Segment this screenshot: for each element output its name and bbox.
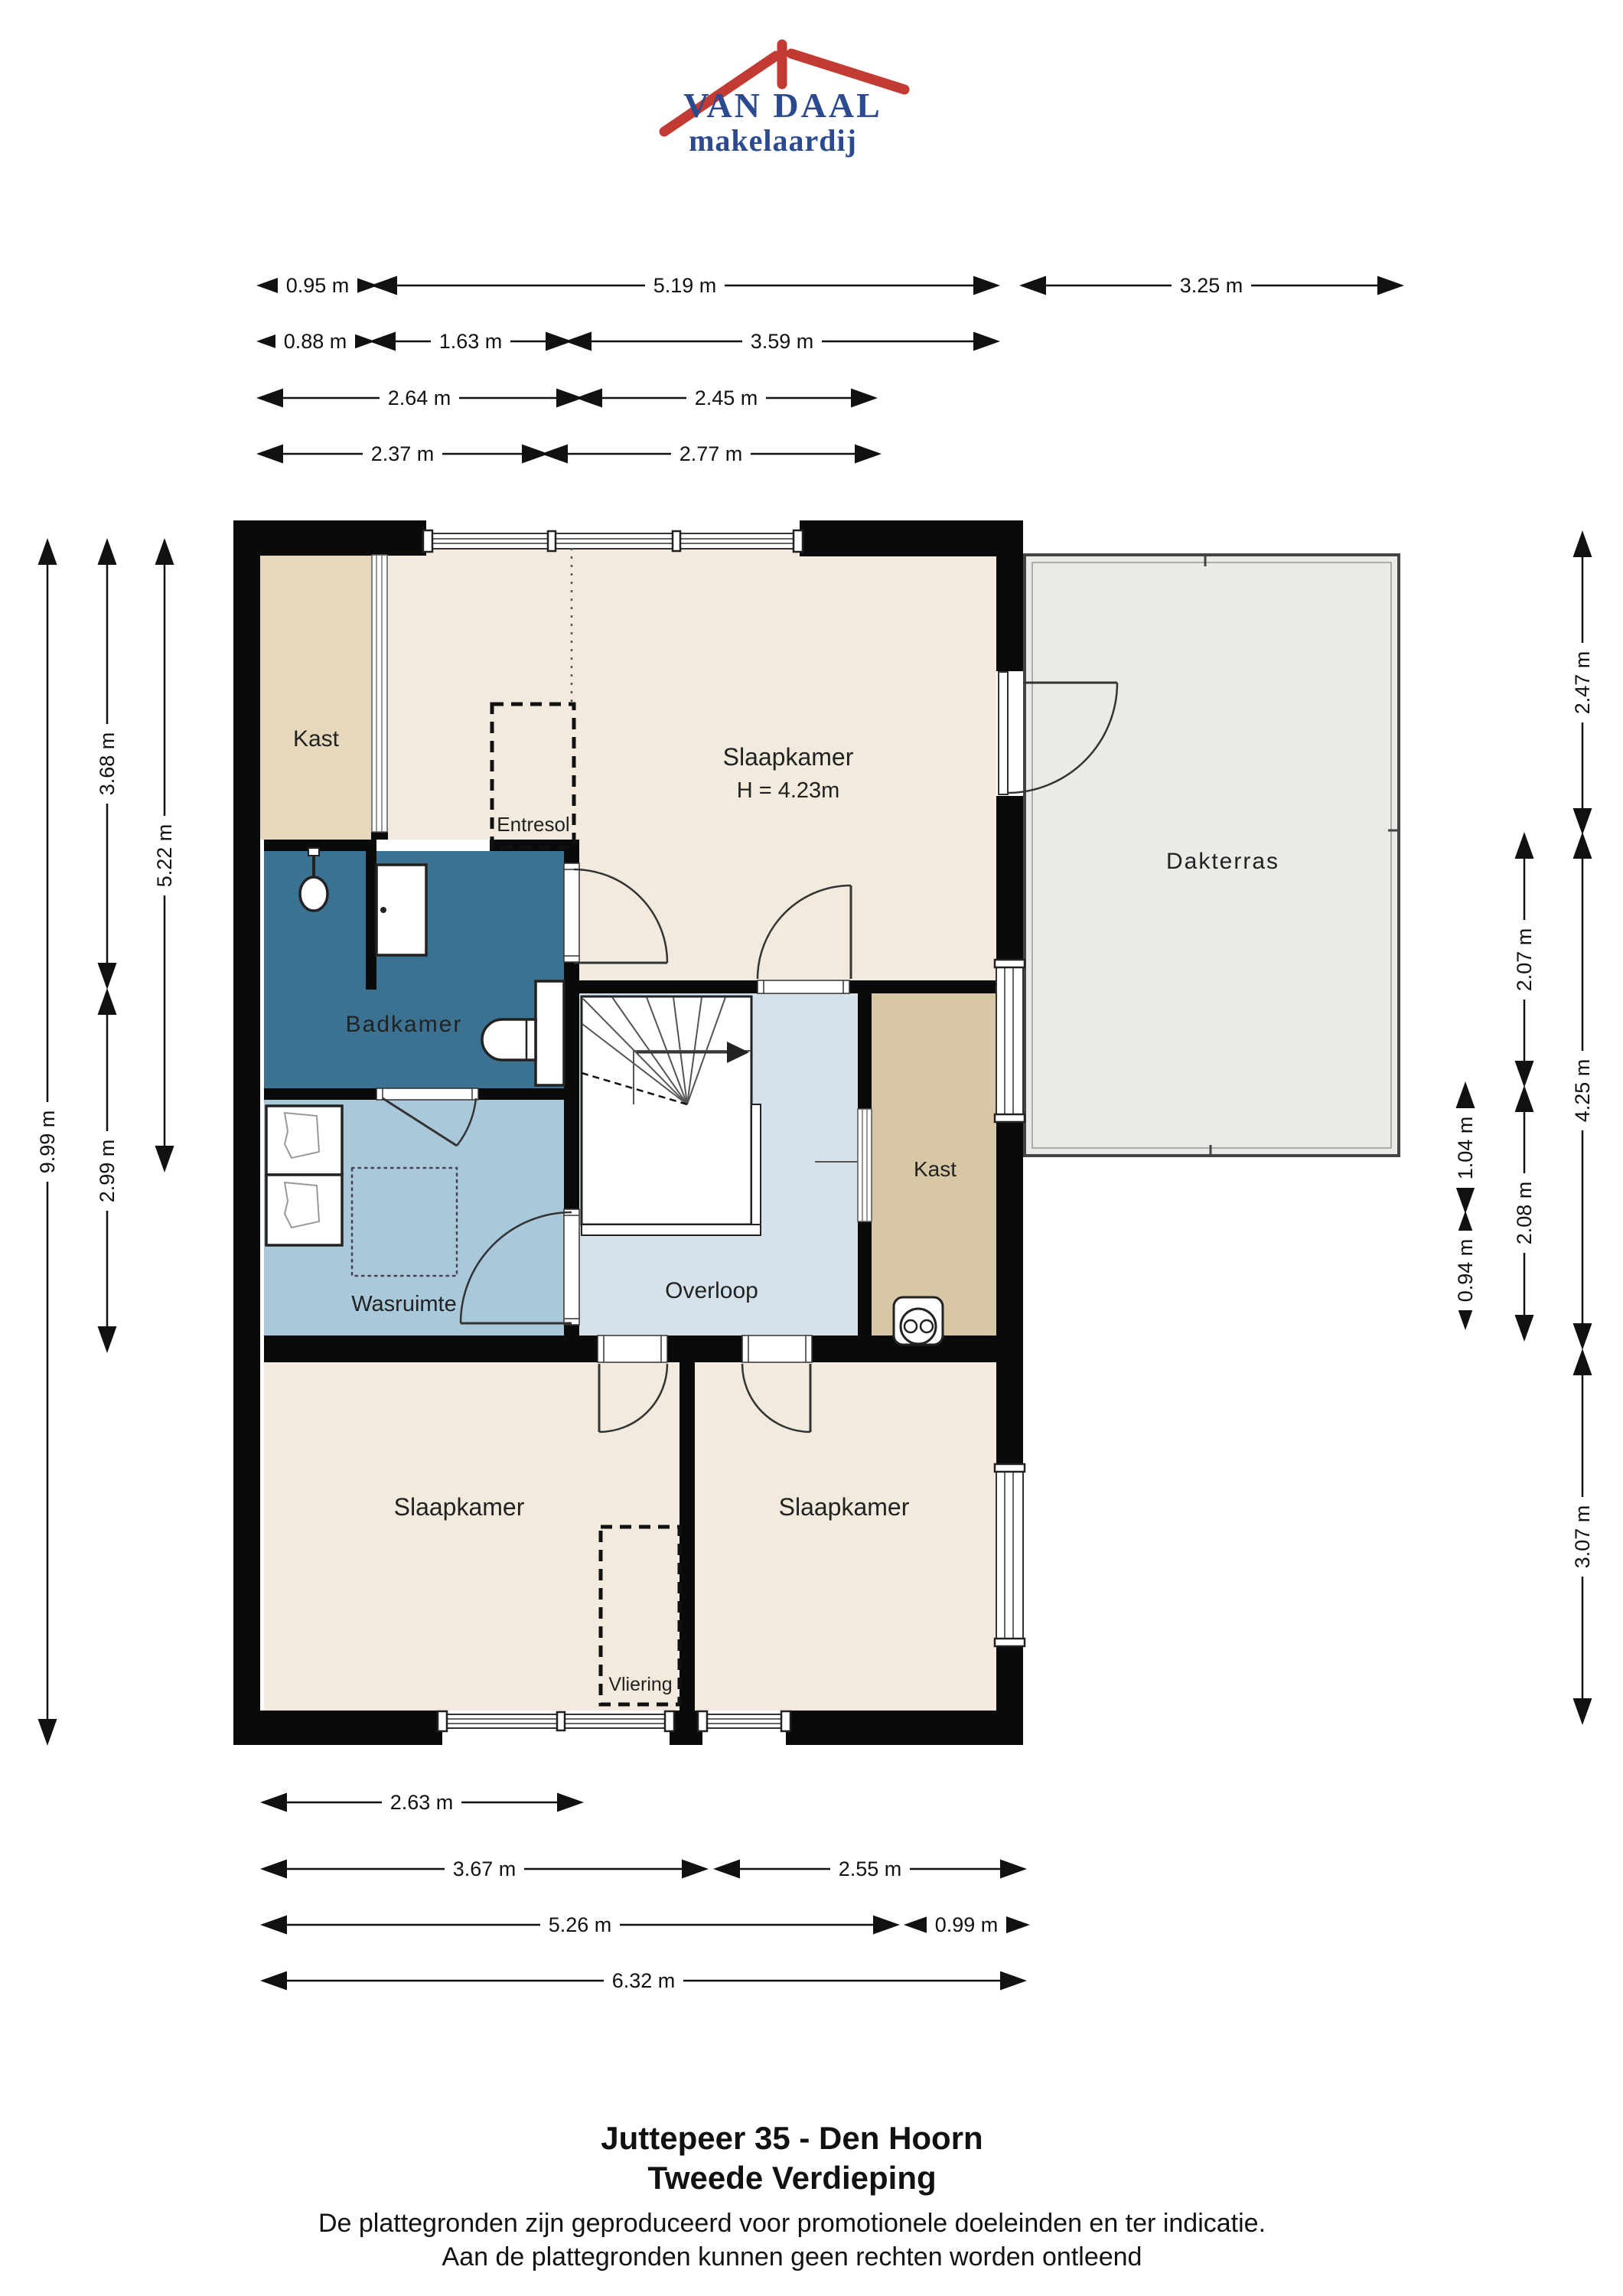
svg-text:2.55 m: 2.55 m bbox=[839, 1857, 902, 1880]
wall-zone-b bbox=[667, 1336, 742, 1362]
wall-bottom-a bbox=[233, 1711, 442, 1745]
wall-bottom-c bbox=[786, 1711, 1023, 1745]
footer-disclaimer-2: Aan de plattegronden kunnen geen rechten… bbox=[442, 2242, 1142, 2272]
svg-text:1.63 m: 1.63 m bbox=[439, 330, 503, 353]
wall-kastmid-left-2 bbox=[858, 1221, 872, 1336]
svg-text:3.67 m: 3.67 m bbox=[453, 1857, 517, 1880]
threshold-wasruimte bbox=[564, 1209, 579, 1325]
stairs-landing-edge bbox=[582, 1225, 761, 1235]
dim-bottom-2: 2.55 m bbox=[717, 1857, 1023, 1881]
svg-text:2.08 m: 2.08 m bbox=[1513, 1182, 1536, 1245]
label-kast-top: Kast bbox=[293, 726, 340, 752]
bathroom-cabinet-icon bbox=[376, 865, 426, 955]
dim-left-1: 3.68 m bbox=[95, 542, 119, 986]
svg-text:3.59 m: 3.59 m bbox=[751, 330, 814, 353]
footer-disclaimer-1: De plattegronden zijn geproduceerd voor … bbox=[318, 2209, 1266, 2238]
wall-slaapkamer-bottom-a bbox=[579, 980, 758, 993]
svg-text:0.99 m: 0.99 m bbox=[935, 1913, 999, 1936]
svg-text:2.07 m: 2.07 m bbox=[1513, 928, 1536, 992]
washing-machine-icon bbox=[266, 1175, 342, 1245]
dim-right-6: 3.07 m bbox=[1570, 1352, 1595, 1721]
label-slaapkamer-bl: Slaapkamer bbox=[394, 1493, 525, 1521]
threshold-badkamer-south bbox=[376, 1088, 478, 1100]
dim-top-7: 2.45 m bbox=[579, 386, 874, 410]
dim-top-9: 2.77 m bbox=[545, 442, 878, 466]
wall-right-1 bbox=[996, 520, 1023, 671]
dim-left-0: 9.99 m bbox=[35, 542, 60, 1742]
footer-title: Juttepeer 35 - Den Hoorn bbox=[601, 2120, 983, 2156]
washing-machine-icon bbox=[266, 1106, 342, 1175]
dim-top-4: 1.63 m bbox=[373, 329, 569, 354]
window-right-upper bbox=[995, 960, 1025, 1122]
label-slaapkamer-top: Slaapkamer bbox=[723, 743, 854, 771]
dim-top-2: 3.25 m bbox=[1023, 273, 1400, 298]
threshold-dakterras bbox=[996, 671, 1023, 796]
svg-text:4.25 m: 4.25 m bbox=[1571, 1059, 1594, 1123]
dim-right-0: 2.47 m bbox=[1570, 534, 1595, 831]
svg-text:5.19 m: 5.19 m bbox=[653, 274, 717, 297]
label-wasruimte: Wasruimte bbox=[351, 1292, 457, 1316]
svg-text:2.99 m: 2.99 m bbox=[96, 1140, 119, 1203]
window-right-lower bbox=[995, 1464, 1025, 1646]
dim-top-5: 3.59 m bbox=[569, 329, 996, 354]
svg-text:5.26 m: 5.26 m bbox=[549, 1913, 612, 1936]
label-vliering: Vliering bbox=[608, 1674, 672, 1695]
wall-top-a bbox=[233, 520, 426, 556]
threshold-slaapkamer-top bbox=[758, 980, 849, 993]
label-slaapkamer-br: Slaapkamer bbox=[779, 1493, 910, 1521]
wall-badkamer-right-2 bbox=[564, 960, 579, 1211]
dim-bottom-5: 6.32 m bbox=[264, 1968, 1023, 1993]
staircase bbox=[582, 996, 761, 1235]
stairs-well bbox=[582, 996, 751, 1225]
wall-slaapkamer-bottom-b bbox=[849, 980, 996, 993]
dim-right-3: 1.04 m bbox=[1453, 1085, 1478, 1210]
svg-text:2.63 m: 2.63 m bbox=[390, 1791, 454, 1814]
footer: Juttepeer 35 - Den Hoorn Tweede Verdiepi… bbox=[318, 2120, 1266, 2272]
svg-text:2.77 m: 2.77 m bbox=[680, 442, 743, 465]
window-kast-divider bbox=[372, 555, 387, 832]
svg-text:2.45 m: 2.45 m bbox=[695, 386, 758, 409]
logo: VAN DAAL makelaardij bbox=[664, 44, 904, 158]
dim-left-3: 5.22 m bbox=[152, 542, 177, 1169]
wall-zone-a bbox=[264, 1336, 598, 1362]
wall-badkamer-bottom-a bbox=[264, 1088, 376, 1100]
dim-right-4: 0.94 m bbox=[1453, 1215, 1478, 1326]
dim-bottom-1: 3.67 m bbox=[264, 1857, 705, 1881]
footer-subtitle: Tweede Verdieping bbox=[647, 2160, 936, 2196]
wall-left bbox=[233, 520, 260, 1745]
label-entresol: Entresol bbox=[497, 813, 569, 836]
svg-text:2.64 m: 2.64 m bbox=[388, 386, 451, 409]
wall-top-b bbox=[800, 520, 1023, 556]
svg-text:3.07 m: 3.07 m bbox=[1571, 1505, 1594, 1569]
svg-text:1.04 m: 1.04 m bbox=[1454, 1117, 1477, 1180]
label-badkamer: Badkamer bbox=[346, 1012, 463, 1037]
dim-bottom-4: 0.99 m bbox=[908, 1913, 1026, 1937]
window-top bbox=[423, 530, 803, 552]
label-overloop: Overloop bbox=[665, 1278, 758, 1303]
dim-bottom-3: 5.26 m bbox=[264, 1913, 896, 1937]
svg-text:2.37 m: 2.37 m bbox=[371, 442, 435, 465]
label-kast-mid: Kast bbox=[914, 1157, 957, 1181]
wall-right-3 bbox=[996, 1117, 1023, 1469]
dim-right-2: 4.25 m bbox=[1570, 836, 1595, 1346]
wall-shower-stub bbox=[366, 851, 376, 990]
svg-text:9.99 m: 9.99 m bbox=[36, 1110, 59, 1174]
dim-top-1: 5.19 m bbox=[374, 273, 996, 298]
wall-kast-divider-cap-bottom bbox=[371, 832, 388, 840]
threshold-bedroom-left bbox=[598, 1336, 667, 1362]
water-heater-icon bbox=[894, 1297, 943, 1345]
floorplan-page: VAN DAAL makelaardij bbox=[0, 0, 1623, 2296]
wall-kastmid-left-1 bbox=[858, 993, 872, 1109]
label-slaapkamer-height: H = 4.23m bbox=[737, 778, 840, 803]
svg-text:0.94 m: 0.94 m bbox=[1454, 1239, 1477, 1303]
threshold-bedroom-right bbox=[742, 1336, 812, 1362]
stairs-edge bbox=[751, 1104, 761, 1231]
dim-top-3: 0.88 m bbox=[260, 329, 371, 354]
wall-badkamer-bottom-b bbox=[478, 1088, 564, 1100]
label-dakterras: Dakterras bbox=[1166, 849, 1279, 874]
svg-text:2.47 m: 2.47 m bbox=[1571, 651, 1594, 715]
dim-top-0: 0.95 m bbox=[260, 273, 374, 298]
svg-text:3.25 m: 3.25 m bbox=[1180, 274, 1243, 297]
dim-bottom-0: 2.63 m bbox=[264, 1790, 580, 1815]
room-slaapkamer-bl bbox=[264, 1362, 680, 1711]
dim-right-1: 2.07 m bbox=[1512, 836, 1537, 1084]
dim-right-5: 2.08 m bbox=[1512, 1089, 1537, 1338]
svg-text:5.22 m: 5.22 m bbox=[153, 824, 176, 888]
dim-left-2: 2.99 m bbox=[95, 992, 119, 1349]
wall-kast-divider-cap-top bbox=[371, 547, 388, 555]
room-kast-top bbox=[260, 548, 371, 840]
room-slaapkamer-br bbox=[695, 1362, 996, 1711]
svg-text:6.32 m: 6.32 m bbox=[612, 1969, 676, 1992]
wall-right-2 bbox=[996, 796, 1023, 964]
svg-text:3.68 m: 3.68 m bbox=[96, 732, 119, 796]
svg-text:0.88 m: 0.88 m bbox=[284, 330, 347, 353]
floorplan-canvas: VAN DAAL makelaardij bbox=[0, 0, 1623, 2296]
window-bottom-left bbox=[438, 1711, 674, 1731]
dim-top-6: 2.64 m bbox=[260, 386, 579, 410]
svg-text:0.95 m: 0.95 m bbox=[286, 274, 350, 297]
wall-badkamer-right-1 bbox=[564, 840, 579, 865]
wall-bedroom-divider bbox=[680, 1362, 695, 1711]
window-bottom-right bbox=[698, 1711, 790, 1731]
logo-name: VAN DAAL bbox=[683, 86, 882, 125]
threshold-badkamer-east bbox=[564, 863, 579, 962]
logo-tagline: makelaardij bbox=[689, 123, 857, 158]
dim-top-8: 2.37 m bbox=[260, 442, 545, 466]
wall-kast-bottom-a bbox=[264, 840, 376, 851]
